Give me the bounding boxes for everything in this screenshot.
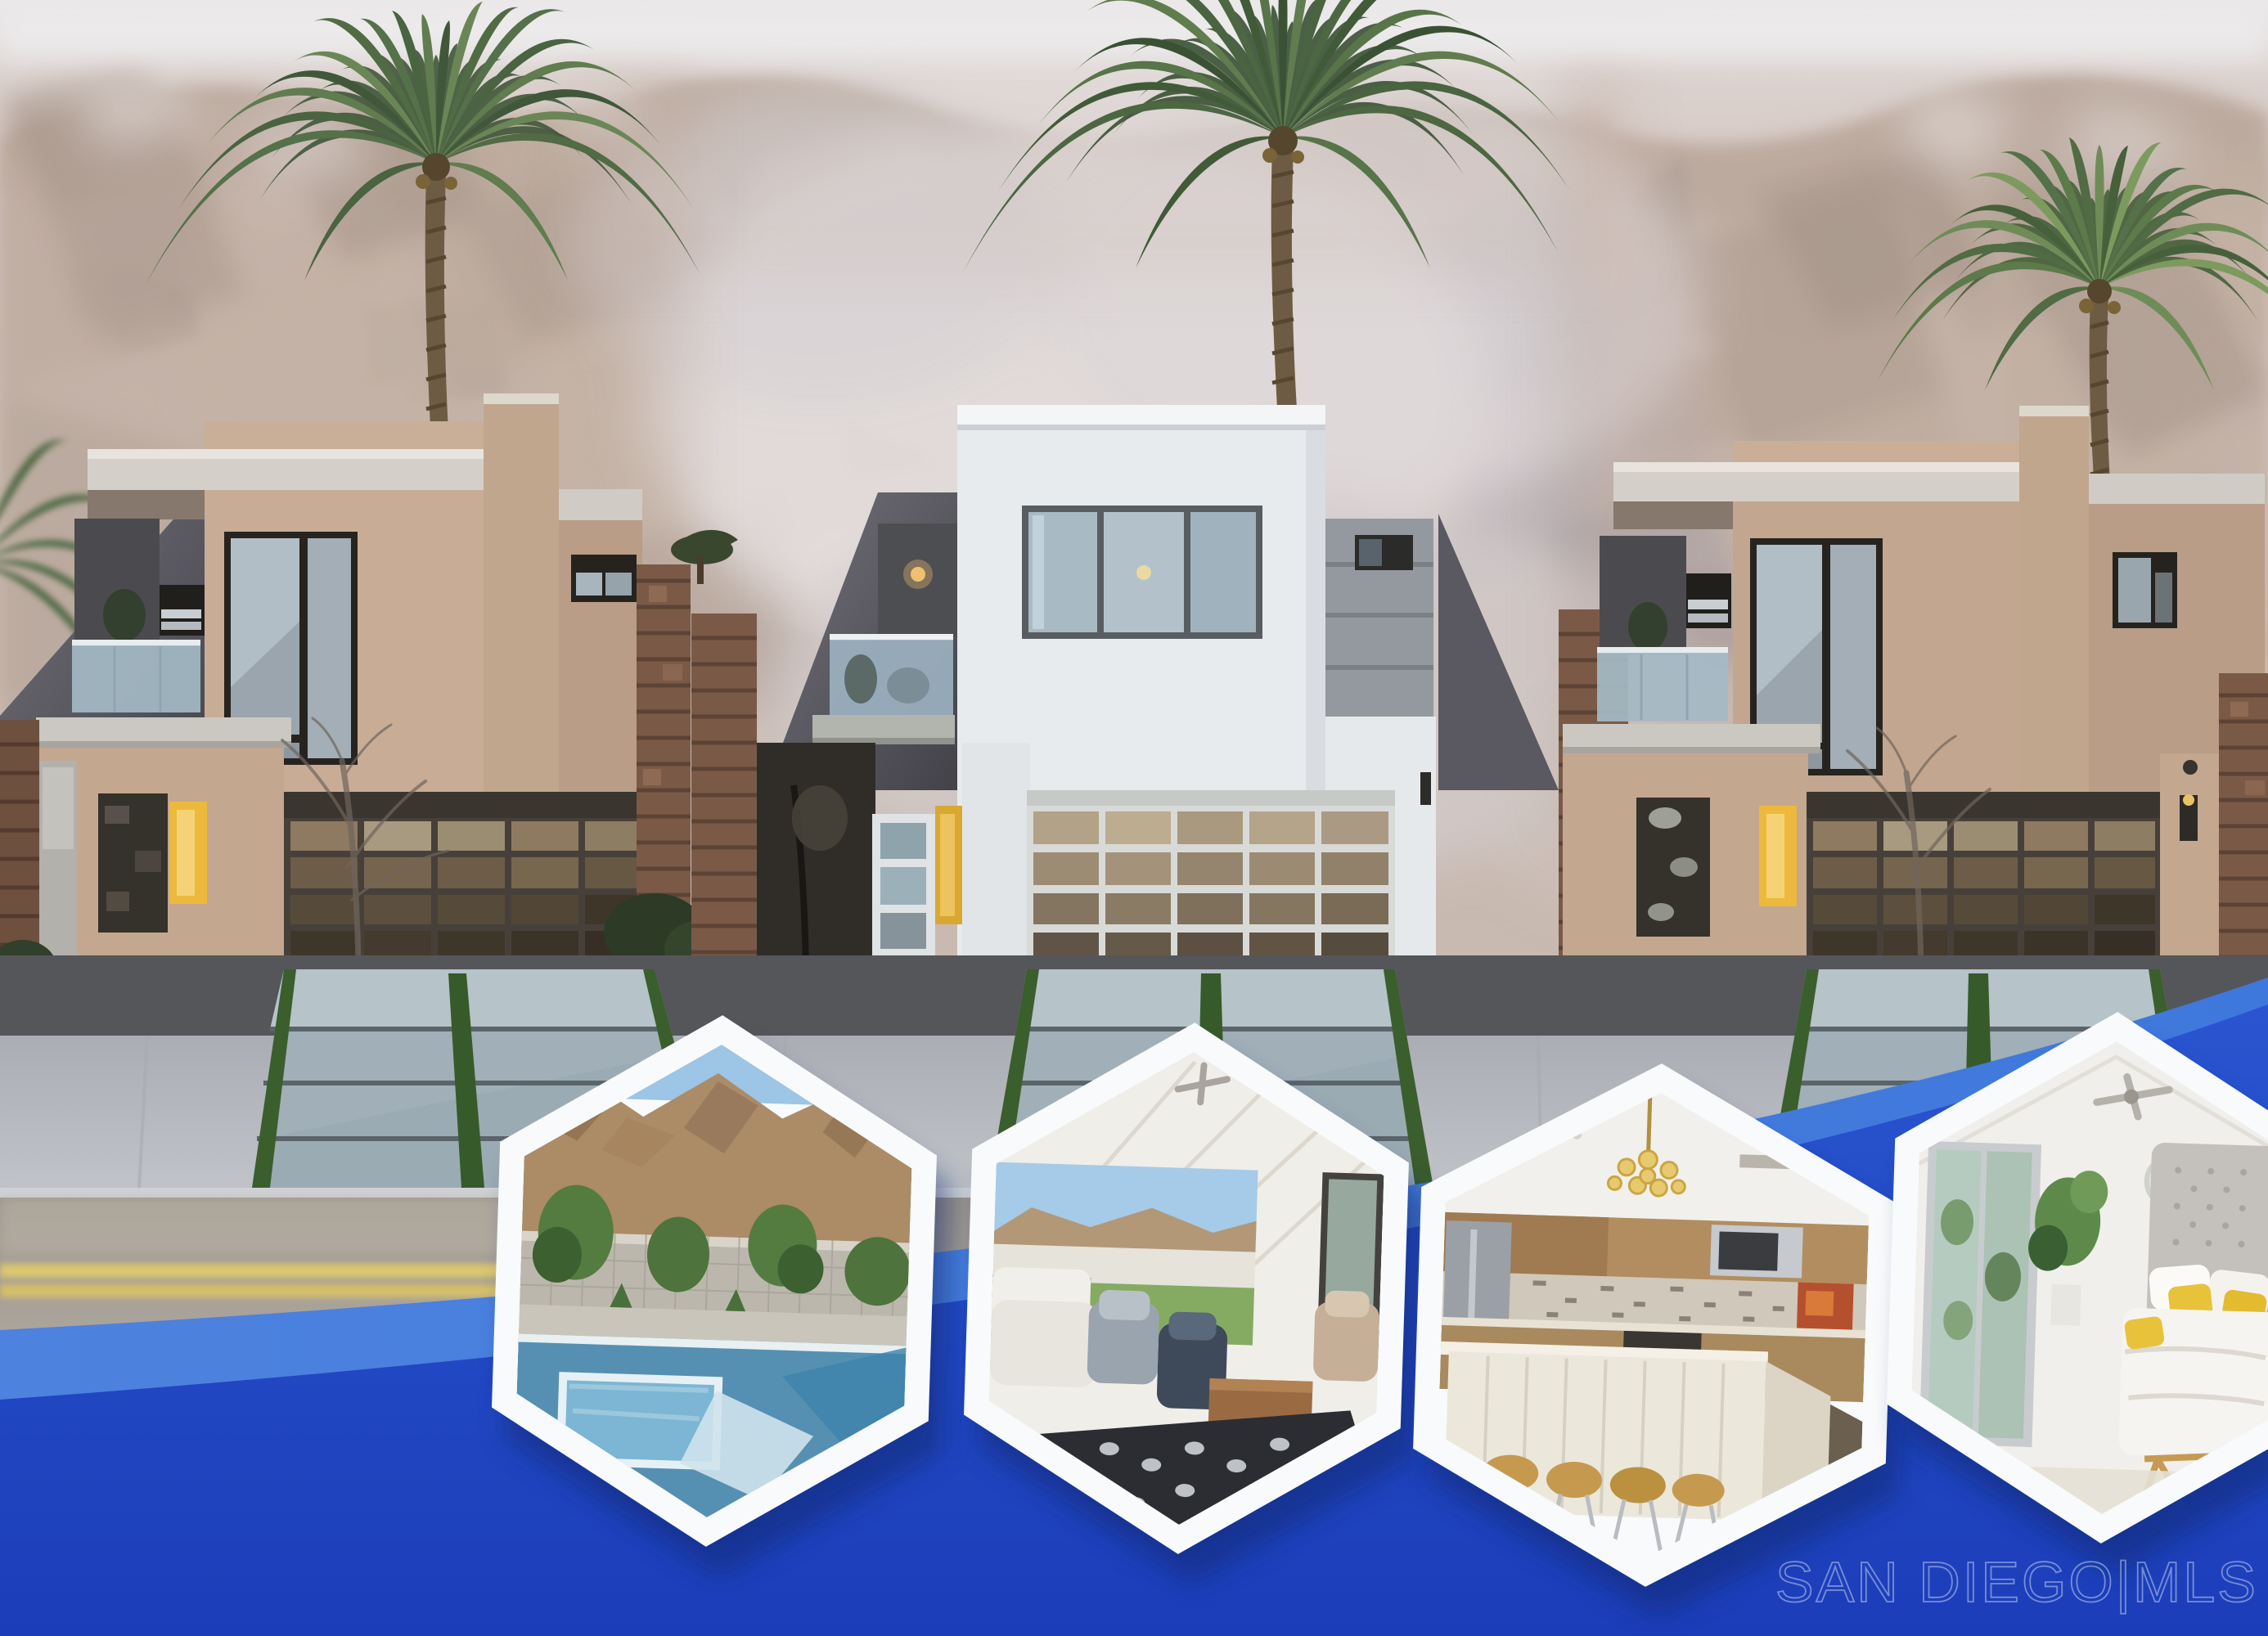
svg-text:SAN DIEGO|MLS: SAN DIEGO|MLS [1775, 1550, 2258, 1614]
